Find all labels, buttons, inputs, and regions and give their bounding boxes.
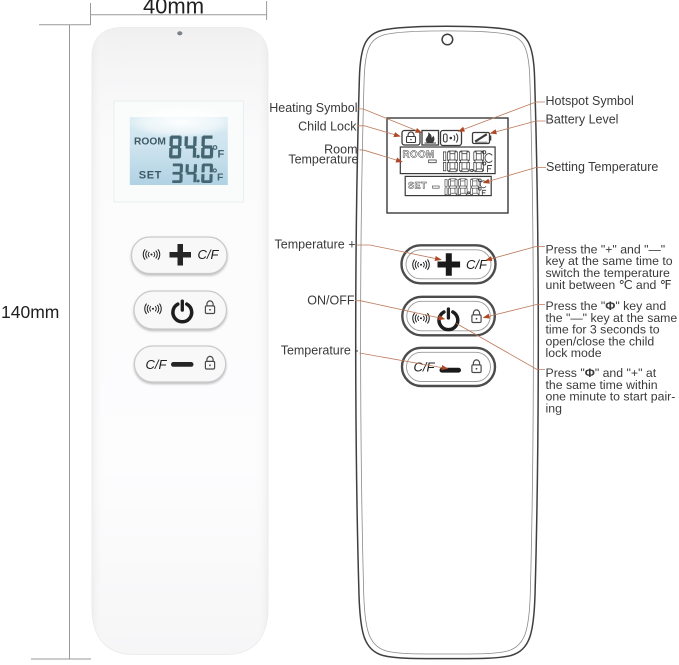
svg-text:C/F: C/F <box>414 360 436 375</box>
svg-text:F: F <box>217 172 224 184</box>
svg-text:one minute to start pair-: one minute to start pair- <box>546 390 676 404</box>
svg-text:unit between ℃ and ℉: unit between ℃ and ℉ <box>546 278 672 292</box>
svg-text:Setting Temperature: Setting Temperature <box>546 160 658 174</box>
svg-text:ing: ing <box>546 401 563 415</box>
svg-text:ROOM: ROOM <box>403 150 435 161</box>
svg-text:lock mode: lock mode <box>546 346 602 360</box>
svg-text:40mm: 40mm <box>143 0 204 19</box>
svg-text:Temperature -: Temperature - <box>281 343 359 357</box>
svg-text:C/F: C/F <box>198 247 220 262</box>
svg-text:ON/OFF: ON/OFF <box>307 294 355 308</box>
svg-text:Temperature: Temperature <box>288 152 358 166</box>
svg-text:Child Lock: Child Lock <box>298 120 357 134</box>
svg-text:Temperature +: Temperature + <box>275 237 356 251</box>
svg-text:ROOM: ROOM <box>134 137 166 148</box>
svg-text:C/F: C/F <box>146 357 168 372</box>
svg-text:SET: SET <box>139 170 162 182</box>
svg-text:C/F: C/F <box>466 257 488 272</box>
svg-text:Battery Level: Battery Level <box>546 113 619 127</box>
svg-text:SET: SET <box>408 181 427 191</box>
svg-text:Heating Symbol: Heating Symbol <box>269 101 357 115</box>
svg-text:Hotspot Symbol: Hotspot Symbol <box>546 94 634 108</box>
svg-text:F: F <box>218 149 225 161</box>
svg-text:140mm: 140mm <box>1 302 59 322</box>
